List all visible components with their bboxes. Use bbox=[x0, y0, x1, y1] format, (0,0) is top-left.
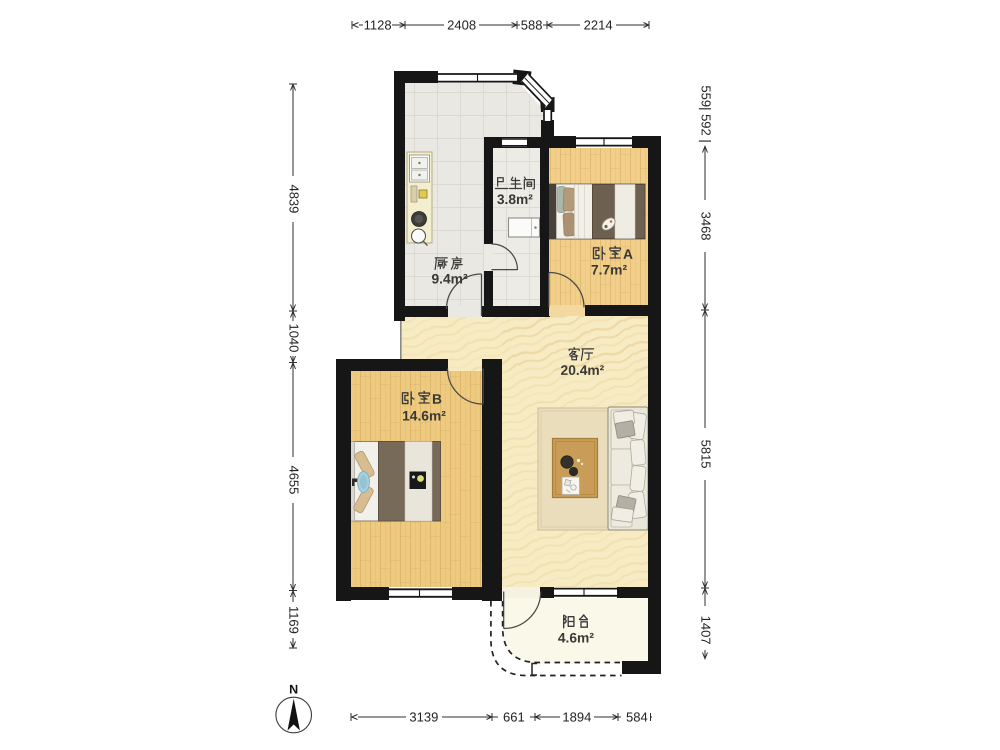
svg-text:14.6m²: 14.6m² bbox=[402, 408, 446, 423]
svg-text:N: N bbox=[289, 682, 298, 696]
svg-text:4.6m²: 4.6m² bbox=[558, 631, 594, 646]
svg-text:1894: 1894 bbox=[562, 710, 591, 725]
svg-text:3.8m²: 3.8m² bbox=[497, 192, 533, 207]
svg-text:5815: 5815 bbox=[698, 440, 713, 469]
svg-text:1407: 1407 bbox=[698, 616, 713, 645]
svg-text:1128: 1128 bbox=[364, 17, 392, 32]
svg-text:9.4m²: 9.4m² bbox=[432, 271, 468, 286]
svg-text:B: B bbox=[432, 392, 442, 407]
svg-text:7.7m²: 7.7m² bbox=[591, 263, 627, 278]
svg-text:20.4m²: 20.4m² bbox=[561, 363, 605, 378]
svg-text:2408: 2408 bbox=[447, 17, 476, 32]
svg-text:2214: 2214 bbox=[584, 18, 613, 33]
svg-text:1169: 1169 bbox=[286, 606, 301, 634]
svg-text:4655: 4655 bbox=[286, 465, 301, 494]
svg-text:4839: 4839 bbox=[287, 184, 302, 213]
svg-text:3139: 3139 bbox=[409, 709, 438, 724]
svg-text:588: 588 bbox=[521, 18, 543, 33]
svg-text:3468: 3468 bbox=[699, 212, 714, 241]
svg-text:661: 661 bbox=[503, 710, 525, 725]
svg-text:559| 592 |: 559| 592 | bbox=[699, 85, 714, 142]
svg-text:A: A bbox=[623, 247, 633, 262]
svg-text:1040: 1040 bbox=[287, 323, 302, 352]
svg-text:584: 584 bbox=[626, 710, 648, 725]
